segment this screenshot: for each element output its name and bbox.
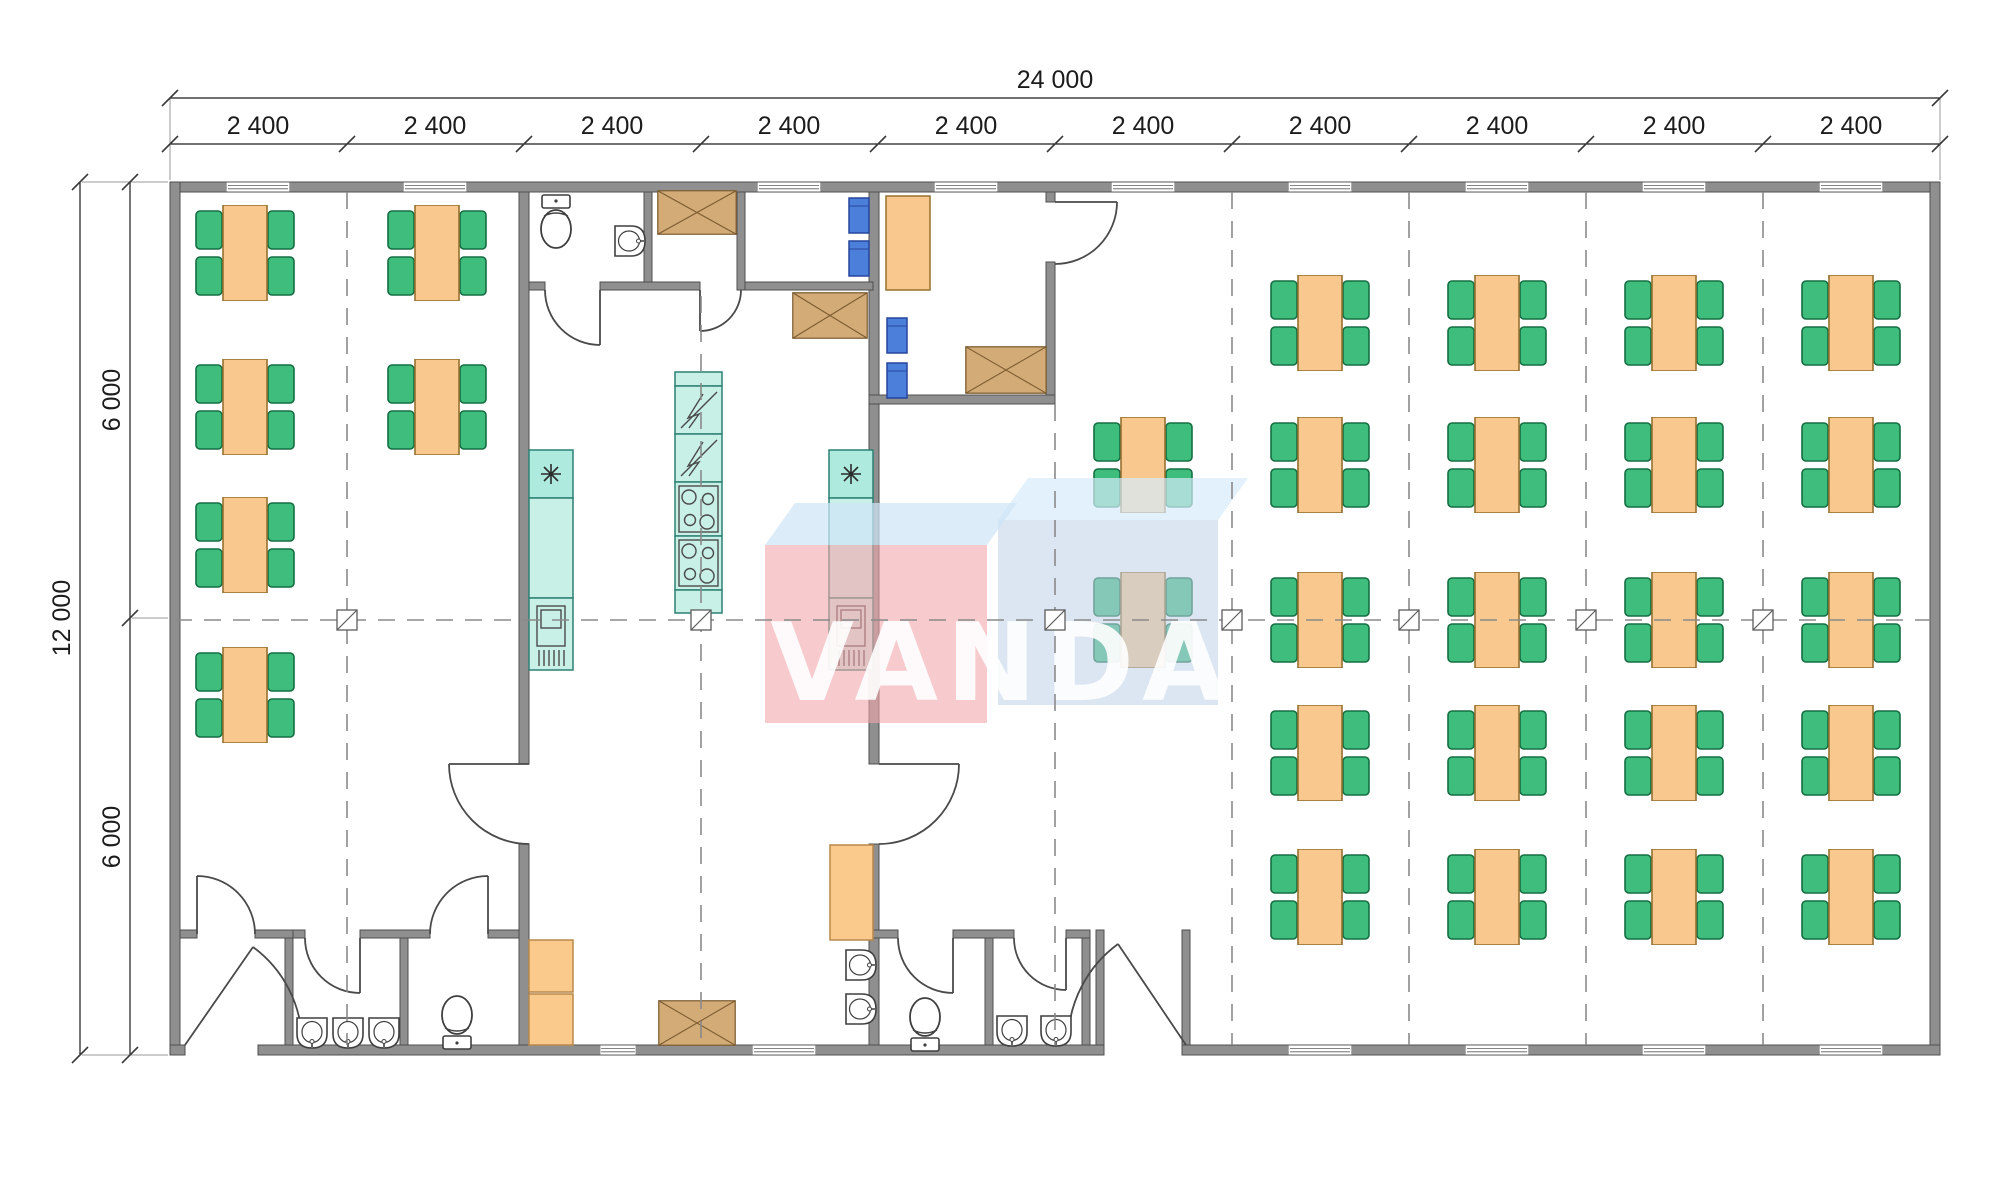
dimension-overall-width: 24 000 bbox=[1017, 66, 1093, 94]
window bbox=[600, 1045, 636, 1055]
storage-box bbox=[659, 1001, 735, 1045]
storage-box bbox=[966, 347, 1046, 393]
bay-dim: 2 400 bbox=[404, 112, 467, 140]
bay-dim: 2 400 bbox=[935, 112, 998, 140]
storage-box bbox=[658, 191, 736, 235]
sink bbox=[369, 1018, 399, 1048]
asterisk-icon-right bbox=[841, 464, 861, 484]
toilet bbox=[442, 996, 472, 1049]
floor-plan: VANDA 24 000 2 400 2 400 2 400 2 400 2 4… bbox=[0, 0, 2000, 1196]
segment-dim: 6 000 bbox=[98, 369, 126, 432]
sink bbox=[1041, 1016, 1071, 1046]
sink bbox=[333, 1018, 363, 1048]
sink bbox=[846, 994, 876, 1024]
toilet bbox=[541, 195, 571, 248]
office-desk bbox=[886, 196, 930, 290]
window bbox=[1111, 182, 1175, 192]
sink bbox=[997, 1016, 1027, 1046]
window bbox=[226, 182, 290, 192]
asterisk-icon-left bbox=[541, 464, 561, 484]
sink bbox=[615, 226, 645, 256]
watermark: VANDA bbox=[765, 478, 1248, 726]
office-chair bbox=[887, 318, 907, 353]
floor-plan-svg: VANDA 24 000 2 400 2 400 2 400 2 400 2 4… bbox=[0, 0, 2000, 1196]
cabinet-kitchen-left-2 bbox=[529, 994, 573, 1045]
sink bbox=[297, 1018, 327, 1048]
bay-dim: 2 400 bbox=[1289, 112, 1352, 140]
bay-dim: 2 400 bbox=[1820, 112, 1883, 140]
office-chair bbox=[887, 363, 907, 398]
dimension-overall-height: 12 000 bbox=[48, 580, 76, 656]
island-cap-top bbox=[675, 372, 722, 386]
window bbox=[934, 182, 998, 192]
window bbox=[1819, 1045, 1883, 1055]
window bbox=[1642, 1045, 1706, 1055]
storage-box bbox=[793, 293, 867, 338]
window bbox=[752, 1045, 816, 1055]
island-stove-1 bbox=[675, 482, 722, 536]
office-chair bbox=[849, 198, 869, 233]
cabinet-kitchen-left-1 bbox=[529, 940, 573, 992]
window bbox=[1465, 182, 1529, 192]
bay-dim: 2 400 bbox=[581, 112, 644, 140]
sink bbox=[846, 950, 876, 980]
window bbox=[1288, 1045, 1352, 1055]
island-stove-2 bbox=[675, 536, 722, 590]
cabinet-kitchen-right bbox=[830, 845, 873, 940]
bay-dim: 2 400 bbox=[758, 112, 821, 140]
window bbox=[757, 182, 821, 192]
office-chair bbox=[849, 241, 869, 276]
window bbox=[1465, 1045, 1529, 1055]
window bbox=[1819, 182, 1883, 192]
bay-dim: 2 400 bbox=[227, 112, 290, 140]
bay-dim: 2 400 bbox=[1466, 112, 1529, 140]
window bbox=[1288, 182, 1352, 192]
bay-dim: 2 400 bbox=[1112, 112, 1175, 140]
toilet bbox=[910, 998, 940, 1051]
appliance-left bbox=[529, 598, 573, 670]
window bbox=[1642, 182, 1706, 192]
watermark-pink-top bbox=[765, 503, 1017, 545]
window bbox=[403, 182, 467, 192]
bay-dim: 2 400 bbox=[1643, 112, 1706, 140]
watermark-blue-top bbox=[998, 478, 1248, 520]
counter-left bbox=[529, 498, 573, 598]
segment-dim: 6 000 bbox=[98, 806, 126, 869]
